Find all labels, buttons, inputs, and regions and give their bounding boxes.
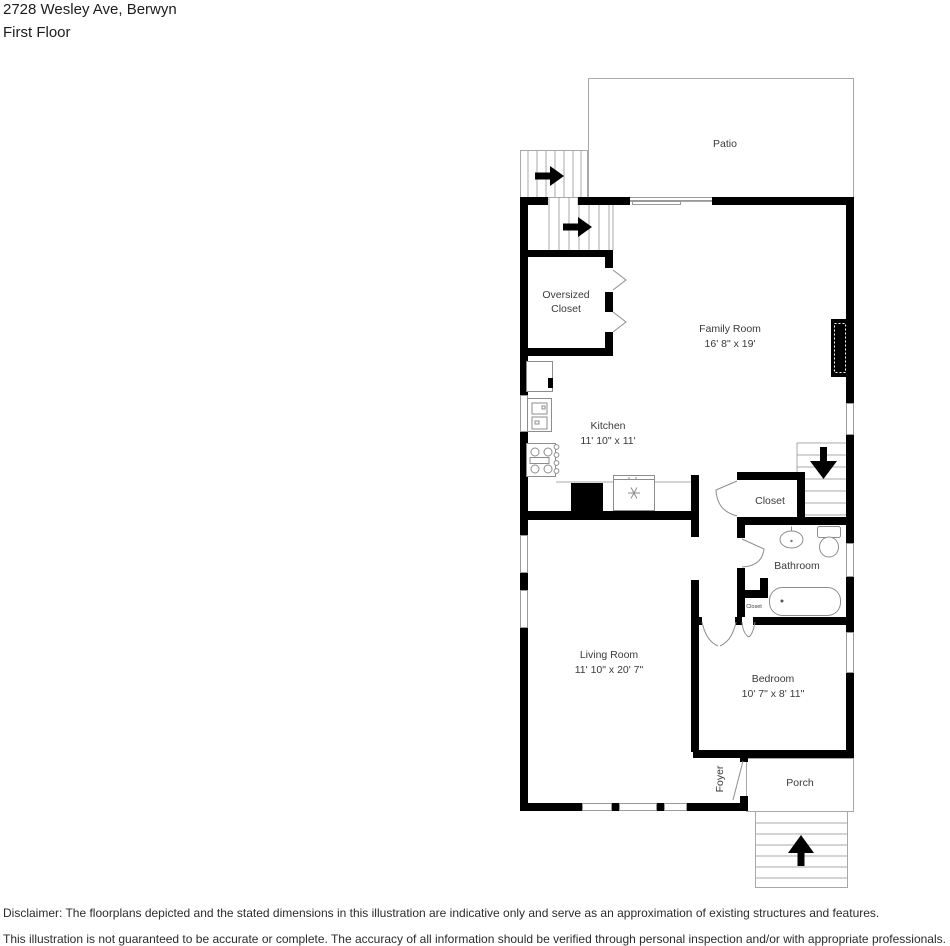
living-room-label: Living Room 11' 10" x 20' 7" xyxy=(534,648,684,678)
disclaimer-line-2: This illustration is not guaranteed to b… xyxy=(3,932,946,946)
oversized-closet-label: Oversized Closet xyxy=(516,288,616,316)
foyer-label: Foyer xyxy=(713,752,727,806)
refrigerator-icon xyxy=(614,476,655,511)
interior-stairs-arrow-right-icon xyxy=(563,217,592,237)
kitchen-cabinet-icon xyxy=(527,362,554,392)
bedroom-label: Bedroom 10' 7" x 8' 11" xyxy=(698,672,848,702)
small-closet-door-arc xyxy=(742,622,749,637)
bedroom-door-arc xyxy=(720,622,736,646)
small-closet-label: Closet xyxy=(740,604,768,611)
floorplan-page: 2728 Wesley Ave, Berwyn First Floor xyxy=(0,0,950,946)
disclaimer-line-1: Disclaimer: The floorplans depicted and … xyxy=(3,906,879,920)
kitchen-label: Kitchen 11' 10" x 11' xyxy=(533,419,683,449)
front-steps-arrow-up-icon xyxy=(788,835,814,866)
closet-label: Closet xyxy=(735,494,805,509)
porch-label: Porch xyxy=(760,776,840,791)
floorplan-drawing xyxy=(0,0,950,946)
foyer-entry-door-leaf xyxy=(733,761,743,800)
patio-label: Patio xyxy=(675,137,775,152)
bathtub-icon xyxy=(770,588,841,616)
toilet-icon xyxy=(818,527,841,558)
family-room-label: Family Room 16' 8" x 19' xyxy=(655,322,805,352)
hall-closet-door-arc xyxy=(716,481,737,516)
kitchen-peninsula xyxy=(571,483,603,511)
small-closet-door-arc xyxy=(749,622,755,637)
bathroom-label: Bathroom xyxy=(752,559,842,574)
basement-stairs-arrow-down-icon xyxy=(810,447,837,479)
fireplace-icon xyxy=(831,319,849,377)
exterior-stairs-arrow-right-icon xyxy=(535,166,564,186)
bathroom-sink-icon xyxy=(780,527,803,549)
sliding-patio-door xyxy=(629,198,714,205)
oversized-closet-door-chevron xyxy=(613,270,626,290)
bedroom-door-arc xyxy=(702,622,718,646)
